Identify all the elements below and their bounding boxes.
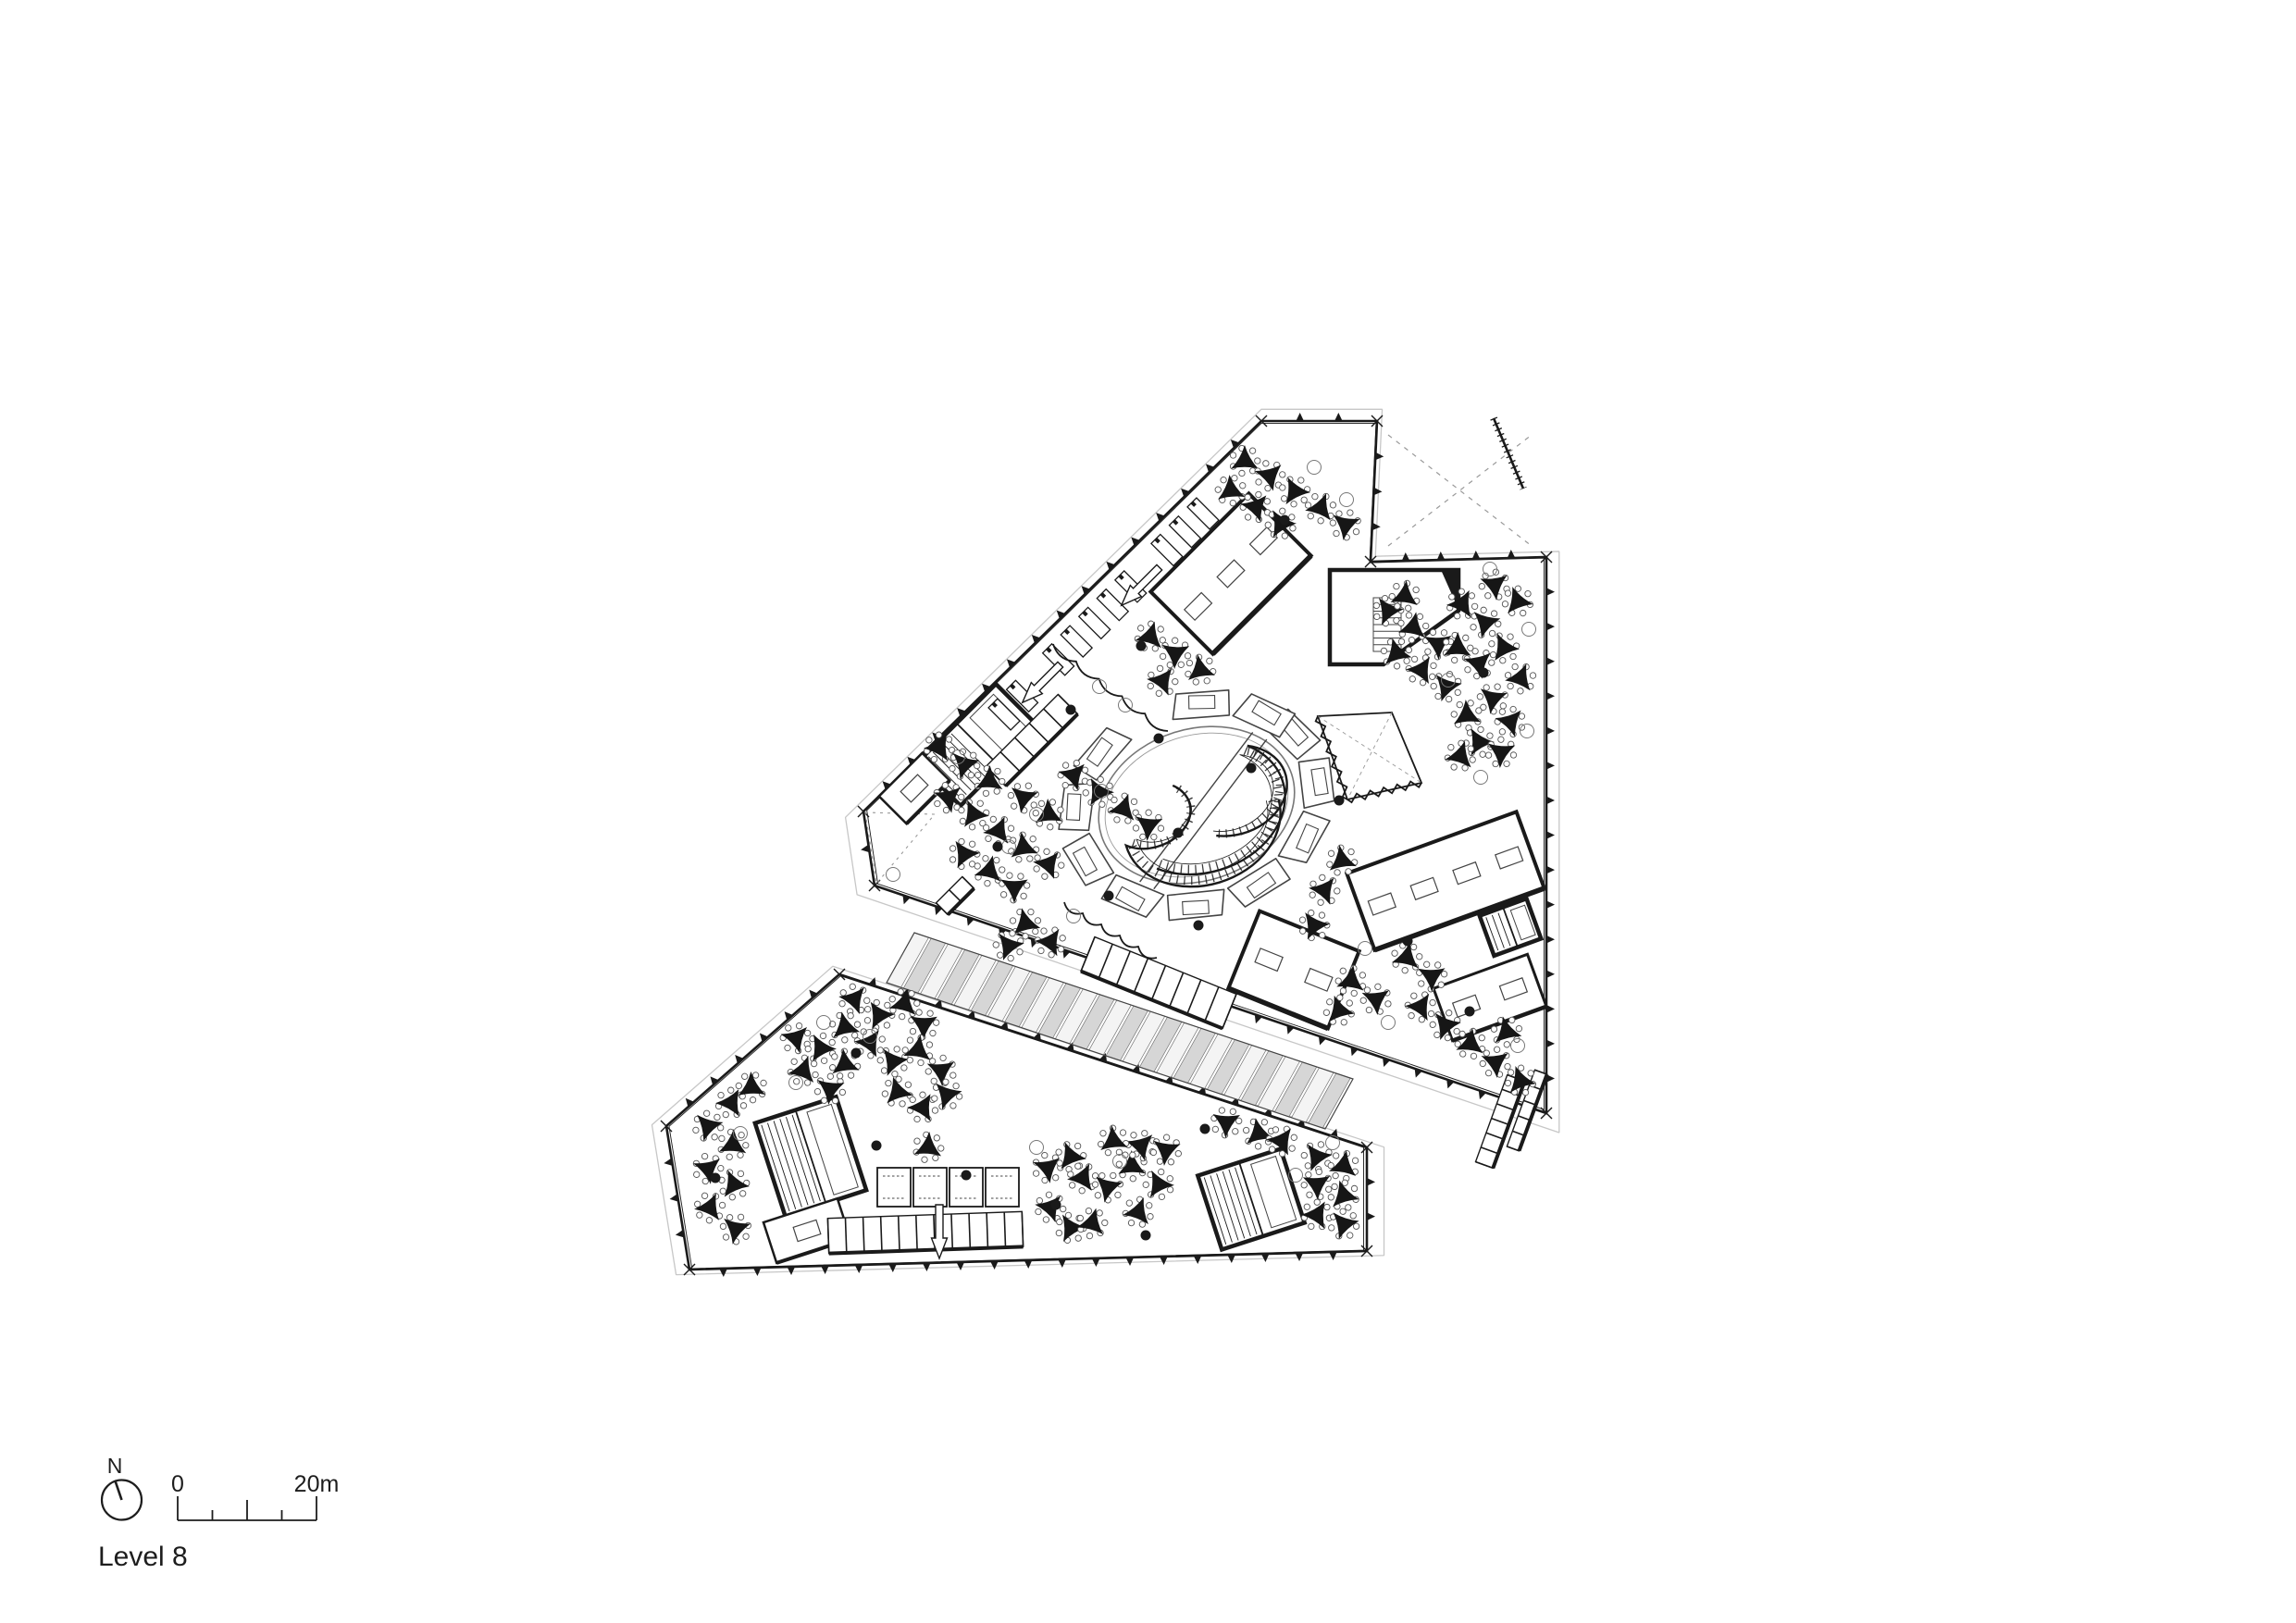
chair-dot <box>1016 948 1023 955</box>
scale-max-label: 20m <box>294 1471 340 1497</box>
chair-dot <box>1325 1186 1332 1193</box>
north-compass-icon <box>102 1481 142 1520</box>
chair-dot <box>1335 511 1342 517</box>
chair-dot <box>1366 1007 1372 1013</box>
chair-dot <box>1239 470 1245 476</box>
chair-dot <box>936 732 942 738</box>
chair-dot <box>1314 1199 1321 1206</box>
chair-dot <box>1255 458 1260 464</box>
chair-dot <box>1301 497 1308 503</box>
chair-dot <box>969 824 975 830</box>
chair-dot <box>994 788 1000 795</box>
chair-dot <box>929 1058 936 1064</box>
chair-dot <box>738 1171 744 1177</box>
chair-dot <box>1074 1143 1081 1149</box>
column-dot <box>1334 796 1345 806</box>
chair-dot <box>1508 634 1514 640</box>
chair-dot <box>1324 1204 1331 1210</box>
chair-dot <box>1330 519 1336 526</box>
chair-dot <box>1458 588 1465 595</box>
chair-dot <box>1454 613 1460 619</box>
chair-dot <box>1318 1141 1324 1147</box>
chair-dot <box>958 807 964 813</box>
chair-dot <box>1483 684 1490 690</box>
column-dot <box>1465 1007 1475 1017</box>
chair-dot <box>1510 653 1517 660</box>
chair-dot <box>742 1142 749 1148</box>
chair-dot <box>1305 1162 1311 1169</box>
chair-dot <box>1347 509 1353 515</box>
chair-dot <box>1249 448 1255 453</box>
chair-dot <box>997 952 1003 959</box>
chair-dot <box>1297 477 1304 484</box>
chair-dot <box>960 818 966 824</box>
column-dot <box>851 1048 862 1059</box>
chair-dot <box>1055 1148 1061 1155</box>
chair-dot <box>1301 1182 1308 1188</box>
chair-dot <box>1471 603 1478 610</box>
chair-dot <box>1480 1060 1486 1067</box>
chair-dot <box>914 1116 920 1121</box>
chair-dot <box>974 772 981 778</box>
chair-dot <box>1469 592 1475 599</box>
chair-dot <box>949 1072 956 1079</box>
chair-dot <box>1307 1192 1313 1198</box>
floor-plan-page: N 0 20m Level 8 <box>0 0 2296 1623</box>
chair-dot <box>931 756 937 762</box>
chair-dot <box>949 747 955 753</box>
chair-dot <box>740 1103 747 1109</box>
chair-dot <box>729 1194 736 1200</box>
chair-dot <box>946 737 952 743</box>
chair-dot <box>925 1069 932 1075</box>
chair-dot <box>999 778 1005 785</box>
chair-dot <box>937 1146 944 1152</box>
chair-dot <box>1488 640 1495 647</box>
chair-dot <box>720 1188 726 1195</box>
chair-dot <box>926 737 933 744</box>
chair-dot <box>726 1154 733 1160</box>
phone-booth-row <box>827 1211 1023 1253</box>
column-dot <box>872 1141 882 1151</box>
chair-dot <box>1483 1050 1490 1057</box>
column-dot <box>1141 1231 1151 1241</box>
north-label: N <box>107 1454 123 1478</box>
chair-dot <box>940 1055 947 1061</box>
meeting-room <box>986 1168 1019 1207</box>
chair-dot <box>1305 1171 1311 1178</box>
chair-dot <box>910 1096 915 1102</box>
column-dot <box>962 1171 972 1181</box>
chair-dot <box>881 1067 887 1073</box>
chair-dot <box>993 941 999 948</box>
column-dot <box>1066 705 1076 715</box>
column-dot <box>1403 936 1413 947</box>
column-dot <box>993 842 1003 852</box>
chair-dot <box>1304 1204 1310 1210</box>
chair-dot <box>1499 657 1506 663</box>
column-dot <box>1051 1200 1061 1210</box>
chair-dot <box>1448 594 1455 601</box>
chair-dot <box>1057 1159 1063 1166</box>
chair-dot <box>922 1157 928 1163</box>
column-dot <box>1280 515 1290 526</box>
chair-dot <box>1353 528 1359 535</box>
chair-dot <box>932 1108 937 1113</box>
chair-dot <box>1463 635 1470 641</box>
chair-dot <box>1301 1152 1308 1158</box>
chair-dot <box>900 1064 907 1071</box>
column-dot <box>1173 828 1184 838</box>
chair-dot <box>1007 955 1013 961</box>
chair-dot <box>1333 530 1339 537</box>
chair-dot <box>932 1155 938 1161</box>
chair-dot <box>1281 495 1287 502</box>
column-dot <box>1104 891 1114 901</box>
chair-dot <box>1036 947 1045 955</box>
chair-dot <box>1490 651 1496 658</box>
chair-dot <box>914 1138 921 1145</box>
column-dot <box>1194 921 1204 931</box>
chair-dot <box>1494 684 1500 690</box>
column-dot <box>711 1173 721 1183</box>
chair-dot <box>1500 702 1507 709</box>
meeting-room <box>913 1168 947 1207</box>
chair-dot <box>920 1092 925 1097</box>
chair-dot <box>877 1057 884 1063</box>
column-dot <box>1136 641 1147 651</box>
chair-dot <box>1451 657 1458 663</box>
chair-dot <box>1309 1223 1315 1230</box>
chair-dot <box>1494 1047 1500 1053</box>
chair-dot <box>1279 485 1285 491</box>
chair-dot <box>728 1087 735 1094</box>
chair-dot <box>1291 501 1297 507</box>
chair-dot <box>1374 984 1381 990</box>
chair-dot <box>1443 639 1449 646</box>
chair-dot <box>1504 1063 1510 1070</box>
chair-dot <box>1360 997 1367 1004</box>
column-dot <box>1479 668 1489 678</box>
chair-dot <box>1384 1000 1391 1007</box>
chair-dot <box>1316 1169 1322 1175</box>
chair-dot <box>718 1092 725 1098</box>
chair-dot <box>983 790 989 797</box>
scale-bar <box>178 1496 316 1520</box>
chair-dot <box>1009 930 1015 936</box>
chair-dot <box>977 800 984 807</box>
legend: N 0 20m Level 8 <box>83 1440 379 1588</box>
chair-dot <box>719 1135 726 1142</box>
chair-dot <box>738 1152 744 1158</box>
chair-dot <box>1477 693 1483 700</box>
chair-dot <box>894 1046 900 1052</box>
floor-plan-drawing <box>0 0 2296 1623</box>
chair-dot <box>738 1132 745 1138</box>
scale-zero-label: 0 <box>171 1471 184 1497</box>
chair-dot <box>1364 987 1371 994</box>
chair-dot <box>1230 452 1235 458</box>
chair-dot <box>723 1111 729 1118</box>
chair-dot <box>1485 1070 1492 1076</box>
column-dot <box>1200 1124 1210 1134</box>
chair-dot <box>739 1190 746 1196</box>
chair-dot <box>995 768 1001 774</box>
chair-dot <box>1484 592 1491 599</box>
meeting-room <box>877 1168 911 1207</box>
level-label: Level 8 <box>98 1542 188 1572</box>
chair-dot <box>1479 583 1485 589</box>
column-dot <box>1154 734 1164 744</box>
column-dot <box>1247 763 1257 774</box>
chair-dot <box>934 1134 940 1141</box>
